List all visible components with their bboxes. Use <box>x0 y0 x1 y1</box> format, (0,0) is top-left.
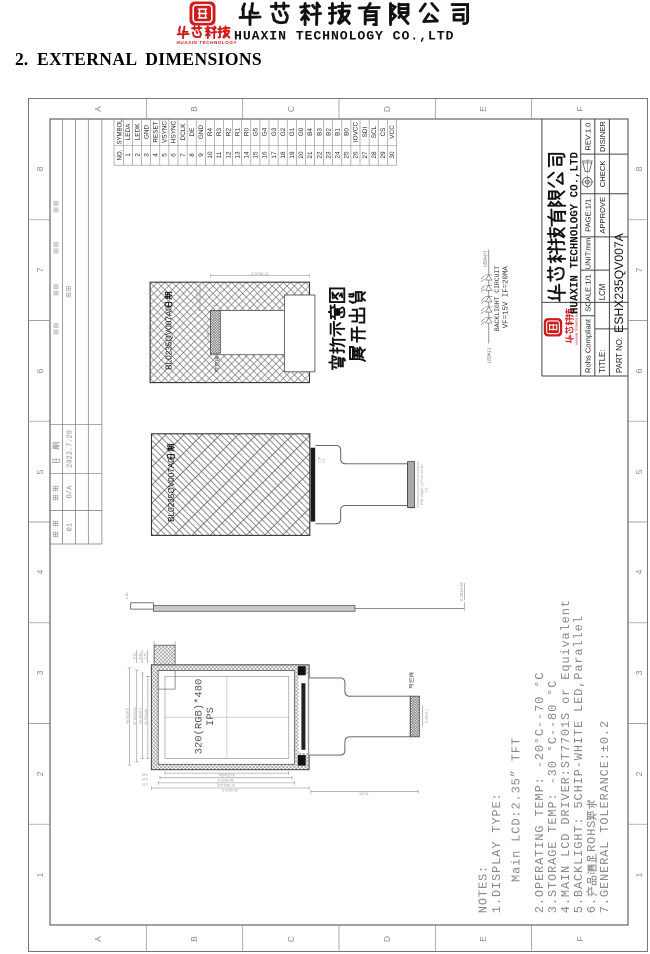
svg-text:RESET: RESET <box>153 121 160 142</box>
svg-text:37.90(LCD): 37.90(LCD) <box>217 783 236 787</box>
svg-text:DCLK: DCLK <box>180 123 187 141</box>
svg-text:LEDK: LEDK <box>134 123 141 140</box>
svg-text:01: 01 <box>67 523 75 532</box>
svg-text:G0: G0 <box>298 127 305 136</box>
svg-text:SYMBOL: SYMBOL <box>117 119 123 145</box>
svg-text:A: A <box>93 106 103 112</box>
svg-text:8: 8 <box>35 166 45 171</box>
svg-text:BACKLIGHT CIRCUIT: BACKLIGHT CIRCUIT <box>494 266 501 331</box>
svg-text:1: 1 <box>125 153 132 157</box>
svg-text:7: 7 <box>180 153 187 157</box>
svg-text:1.60: 1.60 <box>125 593 129 600</box>
svg-text:5: 5 <box>162 153 169 157</box>
svg-text:5.BACKLIGHT: 5CHIP-WHITE LED,P: 5.BACKLIGHT: 5CHIP-WHITE LED,Parallel <box>572 615 586 913</box>
svg-text:6: 6 <box>634 368 644 373</box>
svg-text:NOTES:: NOTES: <box>477 865 491 913</box>
svg-text:E: E <box>478 936 488 942</box>
svg-text:0.5: 0.5 <box>213 303 218 307</box>
svg-text:F: F <box>575 106 585 111</box>
svg-text:SCALE:1/1: SCALE:1/1 <box>584 274 593 312</box>
svg-text:6: 6 <box>171 153 178 157</box>
svg-text:7: 7 <box>634 267 644 272</box>
svg-text:7: 7 <box>35 267 45 272</box>
svg-text:PAGE:1/1: PAGE:1/1 <box>584 199 593 232</box>
svg-text:VF=15V IF=20MA: VF=15V IF=20MA <box>503 266 511 329</box>
svg-text:PART NO:: PART NO: <box>615 337 624 373</box>
svg-text:6: 6 <box>35 368 45 373</box>
svg-text:DISINER: DISINER <box>598 121 607 152</box>
svg-text:D: D <box>382 936 392 942</box>
svg-text:34.92(AA): 34.92(AA) <box>219 773 235 777</box>
svg-text:9: 9 <box>198 153 205 157</box>
svg-text:10: 10 <box>207 151 214 159</box>
svg-text:30: 30 <box>389 151 396 159</box>
svg-text:320(RGB)*480: 320(RGB)*480 <box>194 679 206 755</box>
svg-text:Main LCD:2.35” TFT: Main LCD:2.35” TFT <box>509 737 523 882</box>
svg-text:37.90±0.5: 37.90±0.5 <box>250 272 269 277</box>
svg-text:G5: G5 <box>253 127 260 136</box>
svg-text:4.MAIN LCD DRIVER:ST7701S or E: 4.MAIN LCD DRIVER:ST7701S or Equivalent <box>559 599 573 913</box>
svg-text:BL0235QV007A0: BL0235QV007A0 <box>167 458 176 522</box>
svg-text:LCM: LCM <box>598 284 607 300</box>
svg-text:A: A <box>93 936 103 942</box>
svg-text:25: 25 <box>344 151 351 159</box>
svg-text:14: 14 <box>244 151 251 159</box>
svg-text:VSYNC: VSYNC <box>162 121 169 143</box>
svg-text:4: 4 <box>153 153 160 157</box>
svg-text:4.90: 4.90 <box>142 773 148 777</box>
svg-text:TITLE:: TITLE: <box>598 350 607 373</box>
svg-text:F: F <box>575 936 585 941</box>
svg-text:G3: G3 <box>271 127 278 136</box>
svg-text:3: 3 <box>634 670 644 675</box>
svg-text:UNIT:mm: UNIT:mm <box>584 238 593 270</box>
svg-text:1.0: 1.0 <box>322 458 326 463</box>
svg-text:34.92(AA): 34.92(AA) <box>144 709 148 725</box>
svg-text:NO.: NO. <box>117 149 123 160</box>
svg-text:CHECK: CHECK <box>598 161 607 188</box>
svg-text:43.92±0.5: 43.92±0.5 <box>222 788 238 792</box>
svg-text:1: 1 <box>35 872 45 877</box>
svg-text:IPS: IPS <box>205 707 217 726</box>
svg-text:0.30±0.1: 0.30±0.1 <box>424 709 428 724</box>
svg-text:41.90: 41.90 <box>360 792 369 796</box>
svg-text:2: 2 <box>634 771 644 776</box>
svg-text:ESHX235QV007A: ESHX235QV007A <box>612 232 626 332</box>
svg-text:2: 2 <box>134 153 141 157</box>
svg-text:R1: R1 <box>234 127 241 136</box>
svg-text:0.70: 0.70 <box>142 782 148 786</box>
svg-text:BL0235QV007A0: BL0235QV007A0 <box>165 306 174 370</box>
svg-text:36.90±0.3: 36.90±0.3 <box>218 778 234 782</box>
svg-text:IOVCC: IOVCC <box>353 122 360 143</box>
svg-text:B1: B1 <box>335 128 342 136</box>
svg-text:LEDA(+): LEDA(+) <box>483 250 488 267</box>
svg-text:17: 17 <box>271 151 278 159</box>
svg-text:B4: B4 <box>307 128 314 136</box>
svg-text:LEDK(-): LEDK(-) <box>486 347 491 363</box>
svg-text:0.70: 0.70 <box>144 653 148 660</box>
svg-text:G4: G4 <box>262 127 269 136</box>
svg-text:B: B <box>189 936 199 942</box>
svg-text:B: B <box>189 106 199 112</box>
svg-text:23: 23 <box>325 151 332 159</box>
svg-text:20: 20 <box>298 151 305 159</box>
svg-text:CS: CS <box>380 128 387 137</box>
svg-text:3: 3 <box>143 153 150 157</box>
svg-text:5: 5 <box>35 469 45 474</box>
svg-text:8: 8 <box>189 153 196 157</box>
svg-text:R4: R4 <box>207 127 214 136</box>
svg-text:HUAXIN TECHNOLOGY CO.,LTD: HUAXIN TECHNOLOGY CO.,LTD <box>570 151 582 314</box>
svg-text:16: 16 <box>262 151 269 159</box>
svg-text:3.10: 3.10 <box>142 777 148 781</box>
svg-text:12: 12 <box>225 151 232 159</box>
svg-text:4.10: 4.10 <box>133 653 137 660</box>
svg-text:4: 4 <box>634 569 644 574</box>
svg-text:19: 19 <box>289 151 296 159</box>
svg-text:Rohs Compliant: Rohs Compliant <box>584 318 593 373</box>
svg-text:PIN.30(30-1)*0.5=14.50: PIN.30(30-1)*0.5=14.50 <box>420 464 424 504</box>
svg-text:GND: GND <box>143 125 150 140</box>
svg-text:G2: G2 <box>280 127 287 136</box>
svg-text:E: E <box>478 106 488 112</box>
svg-text:G1: G1 <box>289 127 296 136</box>
svg-text:R2: R2 <box>225 127 232 136</box>
svg-text:18: 18 <box>280 151 287 159</box>
svg-text:D: D <box>382 106 392 112</box>
svg-text:27: 27 <box>362 151 369 159</box>
svg-text:0.5: 0.5 <box>425 488 429 493</box>
svg-text:R0: R0 <box>244 127 251 136</box>
svg-text:22: 22 <box>316 151 323 159</box>
svg-text:1: 1 <box>634 872 644 877</box>
svg-text:1.DISPLAY TYPE:: 1.DISPLAY TYPE: <box>490 792 504 913</box>
svg-text:SCL: SCL <box>371 125 378 138</box>
svg-text:VCC: VCC <box>389 125 396 139</box>
svg-text:24: 24 <box>335 151 342 159</box>
svg-text:5.97±0.5: 5.97±0.5 <box>196 290 200 304</box>
svg-text:13: 13 <box>234 151 241 159</box>
svg-text:2.OPERATING TEMP: -20°C--70 °C: 2.OPERATING TEMP: -20°C--70 °C <box>533 672 547 914</box>
svg-text:2: 2 <box>35 771 45 776</box>
svg-text:21: 21 <box>307 151 314 159</box>
svg-text:B3: B3 <box>316 128 323 136</box>
svg-text:APPROVE: APPROVE <box>598 197 607 234</box>
svg-text:HSYNC: HSYNC <box>171 120 178 143</box>
svg-text:3.STORAGE TEMP: -30 °C--80 °C: 3.STORAGE TEMP: -30 °C--80 °C <box>546 680 560 913</box>
svg-text:29: 29 <box>380 151 387 159</box>
svg-text:0.30±0.05: 0.30±0.05 <box>459 582 464 601</box>
svg-text:36.90±0.3: 36.90±0.3 <box>139 708 143 724</box>
svg-text:2022.7.26: 2022.7.26 <box>67 430 75 468</box>
svg-text:6.: 6. <box>585 897 599 913</box>
svg-text:28: 28 <box>371 151 378 159</box>
svg-text:12.90±0.5: 12.90±0.5 <box>206 324 210 339</box>
svg-text:DE: DE <box>189 128 196 137</box>
svg-text:26: 26 <box>353 151 360 159</box>
svg-text:5: 5 <box>634 469 644 474</box>
svg-text:GND: GND <box>198 125 205 140</box>
svg-text:R3: R3 <box>216 127 223 136</box>
svg-text:7.GENERAL TOLERANCE:±0.2: 7.GENERAL TOLERANCE:±0.2 <box>598 720 612 913</box>
svg-text:B0: B0 <box>344 128 351 136</box>
svg-text:4: 4 <box>35 569 45 574</box>
svg-text:37.90(LCD): 37.90(LCD) <box>133 707 137 726</box>
svg-text:B2: B2 <box>325 128 332 136</box>
svg-text:C: C <box>286 936 296 942</box>
svg-text:3: 3 <box>35 670 45 675</box>
svg-text:15: 15 <box>253 151 260 159</box>
svg-text:REV:1.0: REV:1.0 <box>584 123 593 151</box>
svg-text:SDI: SDI <box>362 126 369 137</box>
svg-text:11: 11 <box>216 151 223 158</box>
svg-text:HUAXIN TECHNOLOGY: HUAXIN TECHNOLOGY <box>575 310 579 344</box>
svg-text:8: 8 <box>634 166 644 171</box>
svg-text:4.30: 4.30 <box>138 653 142 660</box>
svg-text:ROHS: ROHS <box>585 820 599 852</box>
svg-text:43.92±0.5: 43.92±0.5 <box>126 708 130 724</box>
svg-text:LEDA: LEDA <box>125 123 132 140</box>
svg-text:C: C <box>286 106 296 112</box>
svg-text:O/A: O/A <box>67 485 75 499</box>
